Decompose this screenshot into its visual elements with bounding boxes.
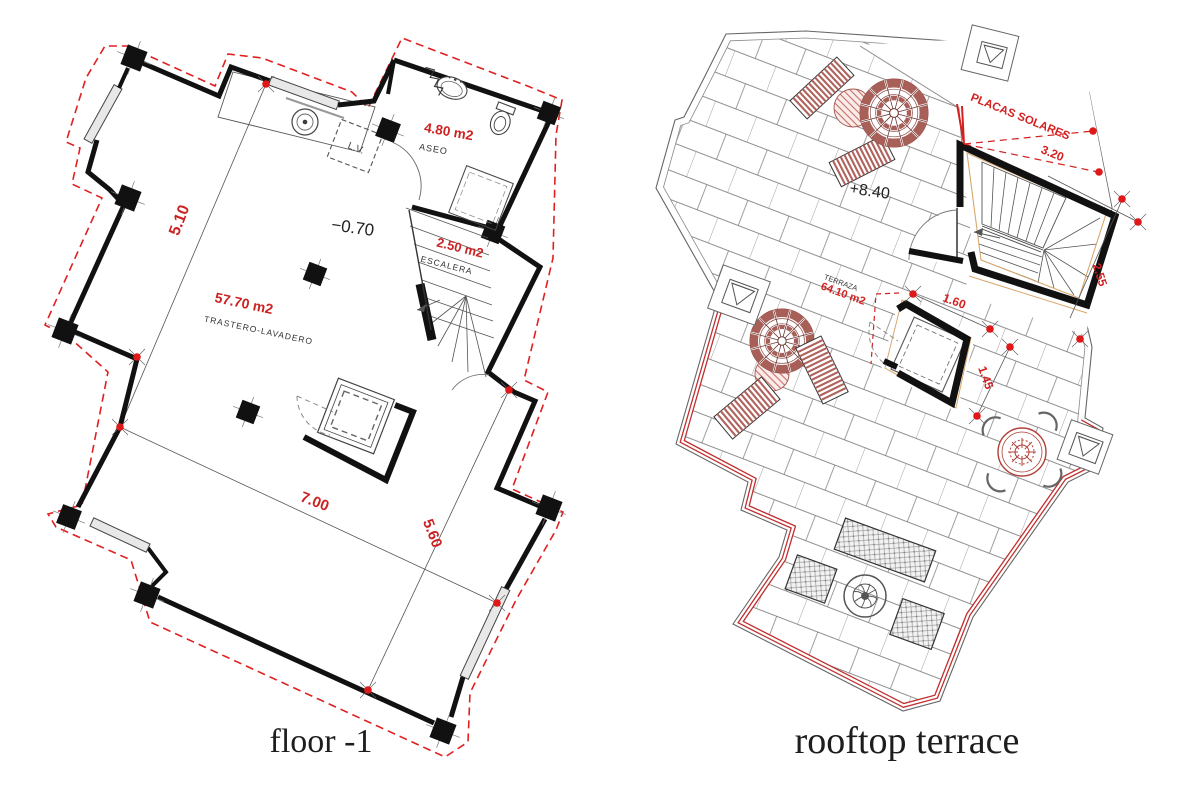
svg-text:rooftop terrace: rooftop terrace bbox=[795, 720, 1020, 762]
svg-text:floor -1: floor -1 bbox=[270, 723, 373, 760]
